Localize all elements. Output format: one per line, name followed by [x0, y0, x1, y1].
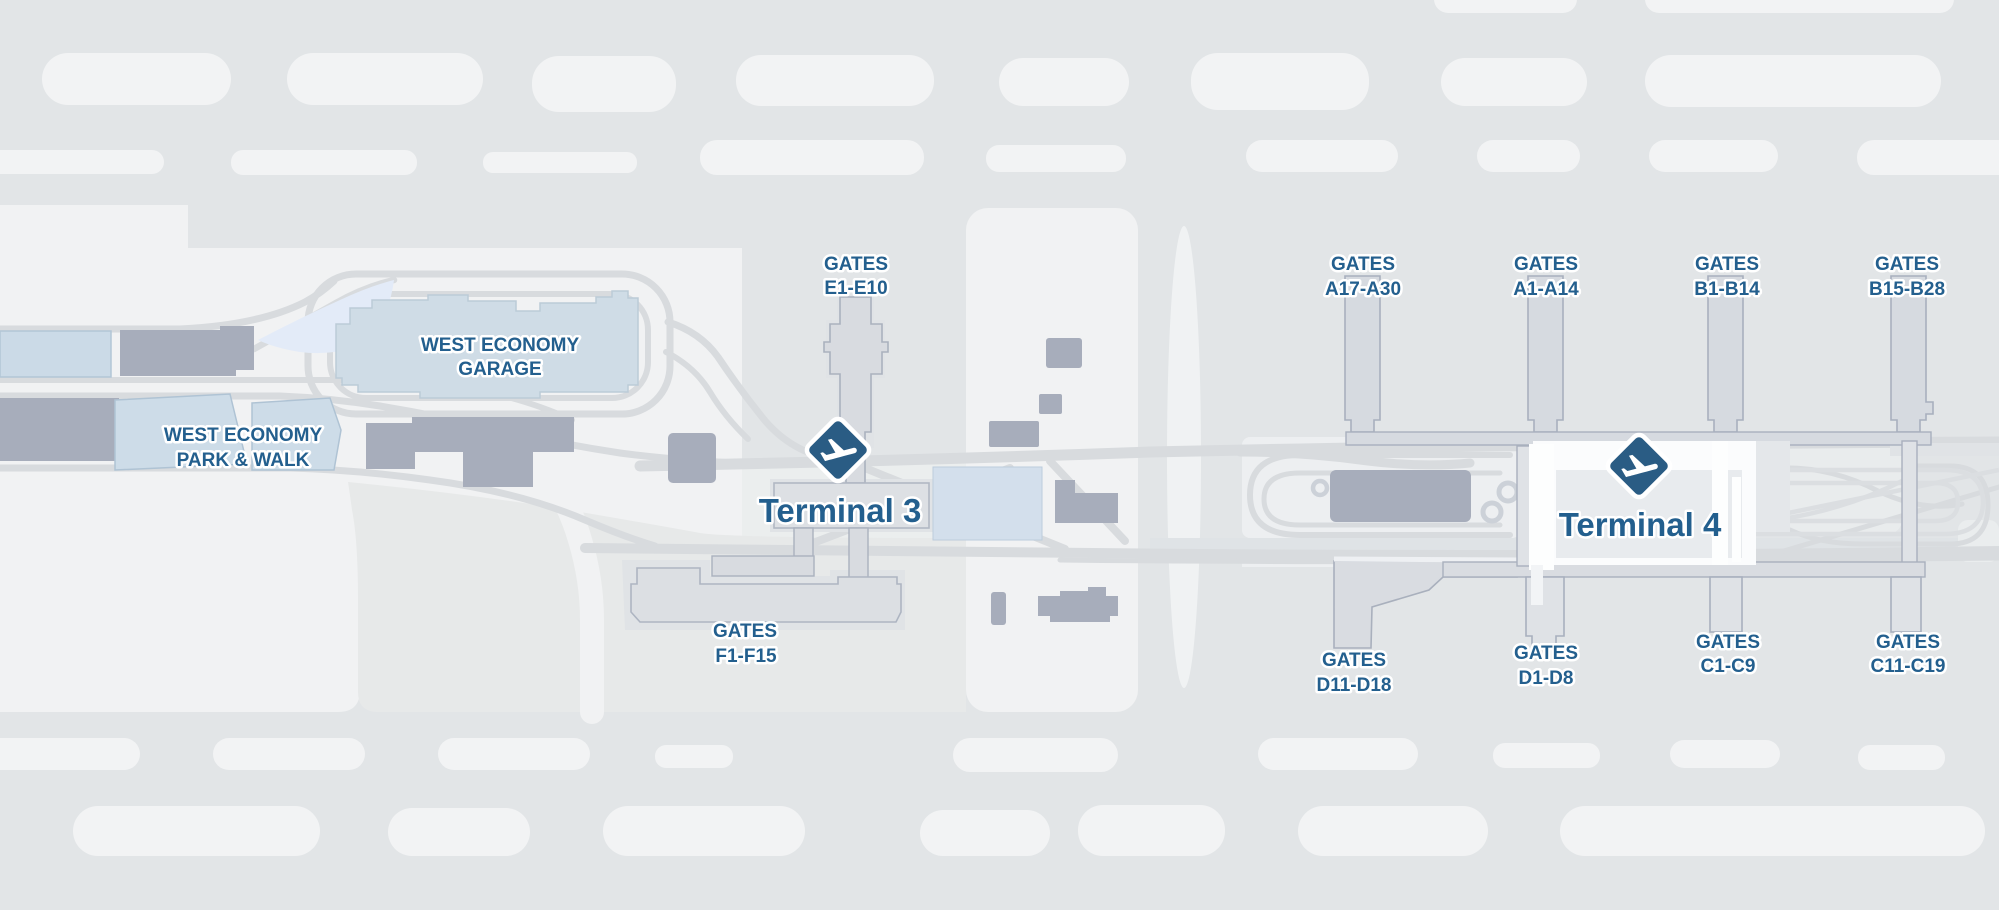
- svg-text:GATES: GATES: [1696, 632, 1760, 653]
- svg-text:B1-B14: B1-B14: [1694, 279, 1760, 300]
- svg-text:GARAGE: GARAGE: [458, 359, 541, 380]
- svg-text:GATES: GATES: [1331, 254, 1395, 275]
- svg-text:GATES: GATES: [824, 254, 888, 275]
- svg-text:WEST ECONOMY: WEST ECONOMY: [164, 425, 323, 446]
- svg-text:D11-D18: D11-D18: [1317, 675, 1392, 696]
- svg-text:GATES: GATES: [1875, 254, 1939, 275]
- svg-text:C11-C19: C11-C19: [1871, 656, 1946, 677]
- svg-text:PARK & WALK: PARK & WALK: [177, 450, 310, 471]
- svg-text:WEST ECONOMY: WEST ECONOMY: [421, 335, 580, 356]
- svg-text:GATES: GATES: [1514, 643, 1578, 664]
- svg-text:Terminal 4: Terminal 4: [1559, 506, 1722, 543]
- svg-text:D1-D8: D1-D8: [1519, 668, 1574, 689]
- svg-text:A17-A30: A17-A30: [1325, 279, 1401, 300]
- svg-text:C1-C9: C1-C9: [1701, 656, 1756, 677]
- svg-text:E1-E10: E1-E10: [824, 278, 887, 299]
- svg-text:GATES: GATES: [1695, 254, 1759, 275]
- svg-text:GATES: GATES: [1514, 254, 1578, 275]
- svg-text:GATES: GATES: [713, 621, 777, 642]
- svg-text:B15-B28: B15-B28: [1869, 279, 1945, 300]
- svg-text:GATES: GATES: [1322, 650, 1386, 671]
- svg-text:Terminal 3: Terminal 3: [759, 492, 922, 529]
- svg-text:GATES: GATES: [1876, 632, 1940, 653]
- svg-text:F1-F15: F1-F15: [715, 646, 777, 667]
- svg-text:A1-A14: A1-A14: [1513, 279, 1579, 300]
